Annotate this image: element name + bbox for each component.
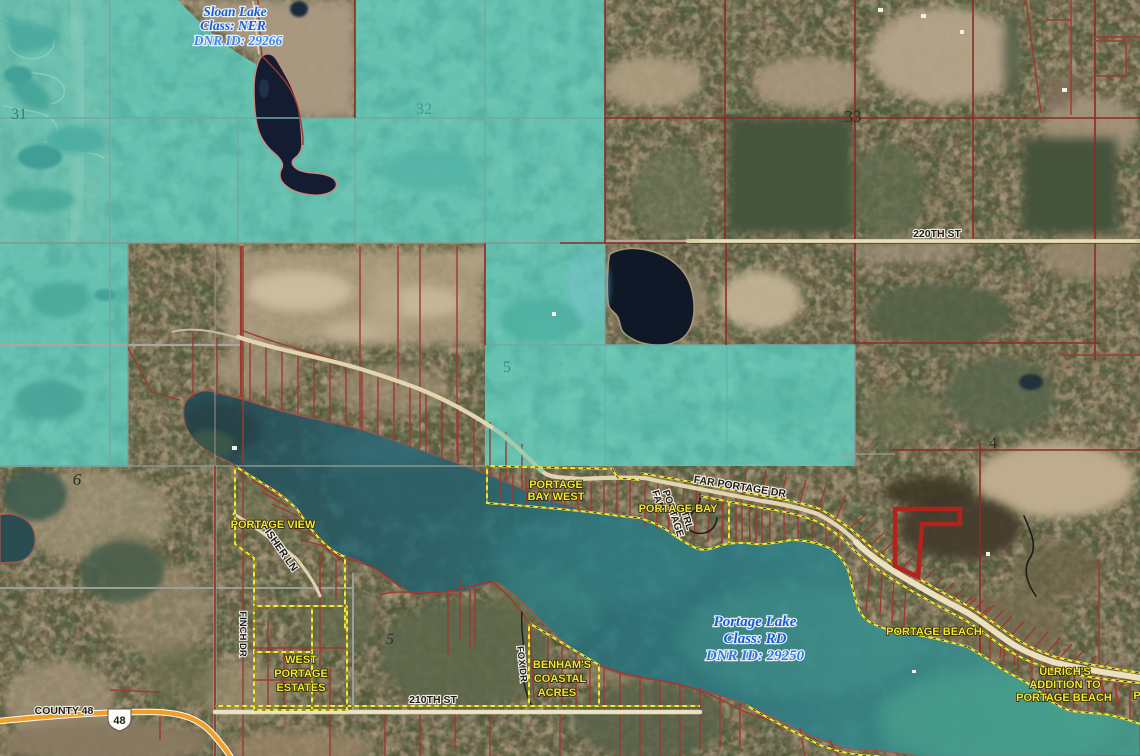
svg-text:BAY WEST: BAY WEST — [528, 491, 585, 503]
svg-text:COASTAL: COASTAL — [534, 673, 587, 685]
svg-text:PORTAGE BEACH: PORTAGE BEACH — [886, 626, 982, 638]
svg-text:Class: NER: Class: NER — [200, 18, 266, 33]
svg-text:FINCH DR: FINCH DR — [237, 611, 248, 657]
svg-text:220TH ST: 220TH ST — [913, 228, 961, 240]
svg-text:5: 5 — [503, 359, 511, 376]
svg-text:31: 31 — [11, 106, 27, 123]
svg-text:Sloan Lake: Sloan Lake — [203, 4, 266, 19]
svg-text:Class: RD: Class: RD — [724, 631, 787, 647]
svg-text:ESTATES: ESTATES — [276, 682, 325, 694]
svg-text:PORTAGE BAY: PORTAGE BAY — [639, 503, 719, 515]
svg-text:32: 32 — [416, 101, 432, 118]
svg-text:Portage Lake: Portage Lake — [714, 614, 797, 630]
svg-text:DNR ID: 29266: DNR ID: 29266 — [193, 33, 283, 48]
svg-text:ACRES: ACRES — [538, 687, 577, 699]
svg-text:BENHAM'S: BENHAM'S — [533, 659, 591, 671]
svg-text:WEST: WEST — [285, 654, 317, 666]
svg-text:PORTAGE: PORTAGE — [529, 479, 583, 491]
svg-text:5: 5 — [386, 631, 394, 648]
svg-text:210TH ST: 210TH ST — [409, 694, 457, 706]
svg-text:6: 6 — [73, 470, 82, 489]
svg-text:33: 33 — [845, 107, 862, 126]
svg-text:P: P — [1133, 690, 1140, 702]
svg-text:PORTAGE: PORTAGE — [274, 668, 328, 680]
svg-text:COUNTY 48: COUNTY 48 — [35, 705, 94, 717]
svg-text:PORTAGE VIEW: PORTAGE VIEW — [231, 519, 316, 531]
svg-text:PORTAGE BEACH: PORTAGE BEACH — [1016, 692, 1112, 704]
svg-text:ULRICH'S: ULRICH'S — [1039, 666, 1091, 678]
svg-text:DNR ID: 29250: DNR ID: 29250 — [705, 648, 805, 664]
svg-text:48: 48 — [113, 715, 125, 727]
svg-text:4: 4 — [989, 435, 997, 452]
svg-text:ADDITION TO: ADDITION TO — [1029, 679, 1101, 691]
